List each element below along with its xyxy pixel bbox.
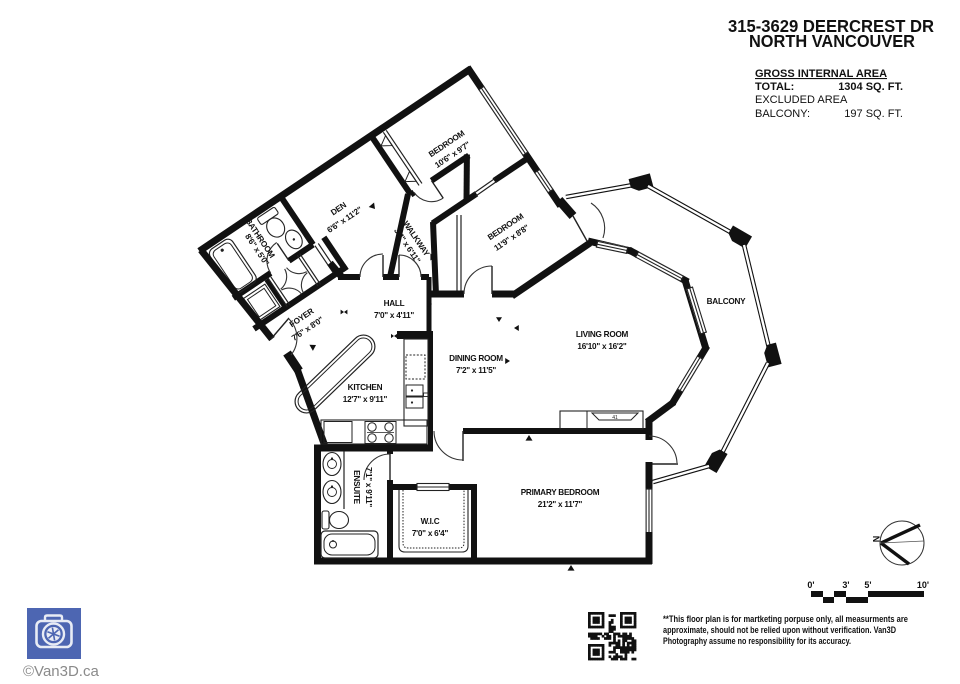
svg-text:W.I.C: W.I.C <box>421 517 440 526</box>
svg-text:3': 3' <box>842 580 849 590</box>
svg-text:HALL: HALL <box>384 299 405 308</box>
svg-text:5': 5' <box>864 580 871 590</box>
svg-text:KITCHEN: KITCHEN <box>348 383 383 392</box>
svg-text:EXCLUDED AREA: EXCLUDED AREA <box>755 94 848 106</box>
svg-text:approximate, should not be rel: approximate, should not be relied upon w… <box>663 625 896 635</box>
svg-text:7'1" x 9'11": 7'1" x 9'11" <box>364 467 373 507</box>
svg-text:16'10" x 16'2": 16'10" x 16'2" <box>577 342 627 351</box>
svg-text:©Van3D.ca: ©Van3D.ca <box>23 663 99 679</box>
svg-text:7'0" x 6'4": 7'0" x 6'4" <box>412 529 449 538</box>
svg-text:1304 SQ. FT.: 1304 SQ. FT. <box>838 81 903 93</box>
svg-text:BALCONY: BALCONY <box>707 297 747 306</box>
svg-text:ENSUITE: ENSUITE <box>352 470 361 505</box>
svg-text:TOTAL:: TOTAL: <box>755 81 794 93</box>
svg-text:10': 10' <box>917 580 929 590</box>
svg-text:NORTH VANCOUVER: NORTH VANCOUVER <box>749 31 915 51</box>
svg-text:GROSS INTERNAL AREA: GROSS INTERNAL AREA <box>755 68 887 80</box>
svg-text:21'2" x 11'7": 21'2" x 11'7" <box>538 500 583 509</box>
svg-text:0': 0' <box>807 580 814 590</box>
svg-text:197 SQ. FT.: 197 SQ. FT. <box>844 108 903 120</box>
svg-text:PRIMARY BEDROOM: PRIMARY BEDROOM <box>521 488 600 497</box>
svg-text:12'7" x 9'11": 12'7" x 9'11" <box>343 395 388 404</box>
svg-text:N: N <box>871 536 881 543</box>
svg-text:DINING ROOM: DINING ROOM <box>449 354 503 363</box>
svg-text:**This floor plan is for martk: **This floor plan is for martketing porp… <box>663 614 908 624</box>
svg-text:7'2" x 11'5": 7'2" x 11'5" <box>456 366 496 375</box>
svg-text:7'0" x 4'11": 7'0" x 4'11" <box>374 311 414 320</box>
svg-text:BALCONY:: BALCONY: <box>755 108 810 120</box>
svg-text:LIVING ROOM: LIVING ROOM <box>576 330 629 339</box>
svg-text:41: 41 <box>612 415 618 421</box>
svg-text:Photography assume no responsi: Photography assume no responsibility for… <box>663 636 851 646</box>
